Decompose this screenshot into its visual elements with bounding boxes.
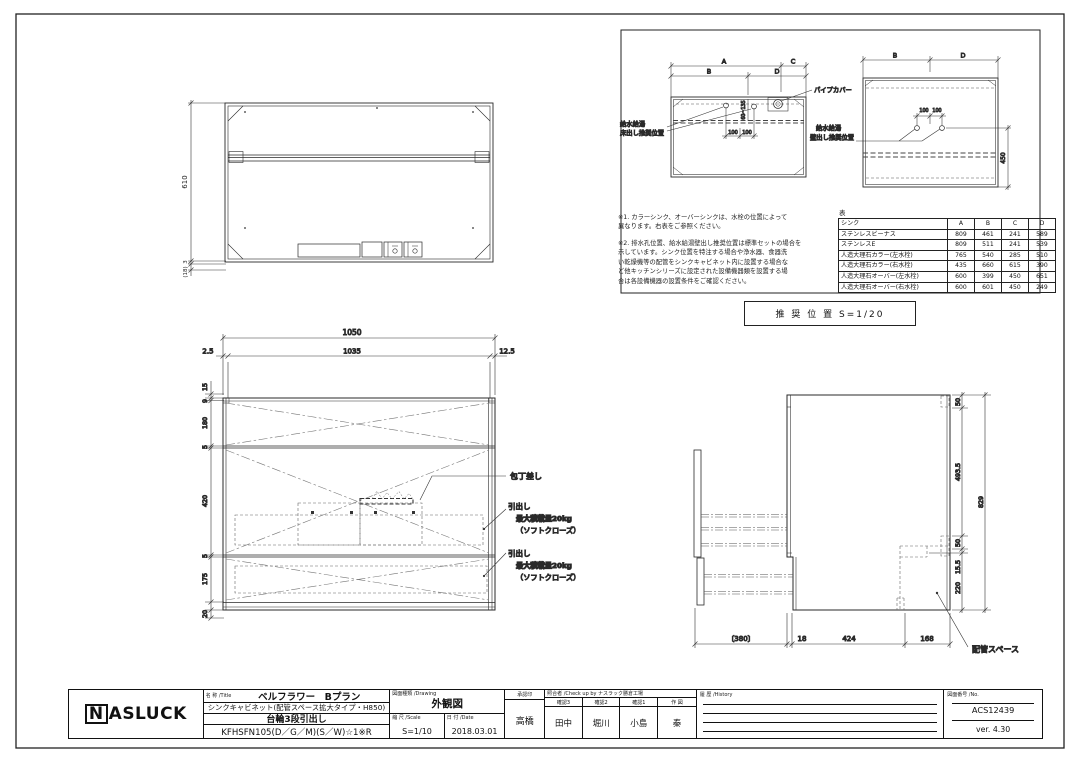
cell: 511 xyxy=(975,240,1002,251)
product-subtitle: シンクキャビネット(配管スペース拡大タイプ・H850) xyxy=(204,703,390,714)
dim-100-floor-a: 100 xyxy=(728,130,738,136)
sink-table: シンク A B C D ステンレスビーナス 809 461 241 589 ステ… xyxy=(838,218,1056,293)
drawing-number-cell: 図面番号 /No. ACS12439 ver. 4.30 xyxy=(944,690,1042,738)
table-row: ステンレスビーナス 809 461 241 589 xyxy=(839,229,1056,240)
sink-table-block: 表 シンク A B C D ステンレスビーナス 809 461 241 589 … xyxy=(838,207,1040,293)
dim-18: (18) xyxy=(183,266,189,277)
cell: 600 xyxy=(948,282,975,293)
cell: 809 xyxy=(948,229,975,240)
dim-5b: 5 xyxy=(202,554,209,558)
cell: 765 xyxy=(948,250,975,261)
layout-plan-floor: 100 100 60~135 A C B D パイプカバー 給水給湯 床出し推奨… xyxy=(620,58,852,178)
dim-50b: 50 xyxy=(955,539,962,547)
dim-15-5: 15.5 xyxy=(955,560,962,574)
front-view: 1050 2.5 1035 12.5 15 9 180 5 420 5 175 … xyxy=(202,328,580,621)
note-1: ※1. カラーシンク、オーバーシンクは、水栓の位置によって 異なります。右表をご… xyxy=(618,213,842,232)
check-col-3-label: 確認3 xyxy=(545,698,583,706)
check-name-2: 堀川 xyxy=(583,707,621,738)
product-title: ベルフラワー Bプラン xyxy=(231,690,387,703)
table-row: 人造大理石オーバー(左水栓) 600 399 450 651 xyxy=(839,271,1056,282)
cell: 589 xyxy=(1029,229,1056,240)
cell: 249 xyxy=(1029,282,1056,293)
dim-220: 220 xyxy=(955,582,962,594)
logo-text: ASLUCK xyxy=(109,704,187,724)
wall-supply-label-1: 給水給湯 xyxy=(816,123,842,132)
check-label: 照合者 /Check up by ナスラック勝倉工場 xyxy=(547,691,643,697)
sink-table-caption: 表 xyxy=(839,207,1040,217)
dim-letter-C: C xyxy=(791,58,796,66)
dim-5a: 5 xyxy=(202,445,209,449)
cell: 461 xyxy=(975,229,1002,240)
dim-829: 829 xyxy=(978,496,985,508)
cell: 435 xyxy=(948,261,975,272)
table-row: 人造大理石カラー(左水栓) 765 540 285 510 xyxy=(839,250,1056,261)
approval-cell: 承認印 高橋 xyxy=(505,690,545,738)
dim-letter-D2: D xyxy=(960,52,965,60)
cell: 285 xyxy=(1002,250,1029,261)
dim-420: 420 xyxy=(202,495,209,507)
wall-supply-label-2: 壁出し推奨位置 xyxy=(810,133,854,142)
cell: 600 xyxy=(948,271,975,282)
cell: 390 xyxy=(1029,261,1056,272)
history-cell: 履 歴 /History xyxy=(697,690,944,738)
notes-block: ※1. カラーシンク、オーバーシンクは、水栓の位置によって 異なります。右表をご… xyxy=(618,213,842,293)
cell: ステンレスビーナス xyxy=(839,229,948,240)
drawer-close-2: （ソフトクローズ） xyxy=(516,573,580,582)
table-row: 人造大理石カラー(右水栓) 435 660 615 390 xyxy=(839,261,1056,272)
note-2: ※2. 排水孔位置、給水給湯壁出し推奨位置は標準セットの場合を 示しています。シ… xyxy=(618,239,842,286)
drawer-load-1: 最大積載量20kg xyxy=(516,514,572,523)
dim-168: 168 xyxy=(920,635,933,643)
dim-380: 〔380〕 xyxy=(727,635,754,643)
cell: 人造大理石オーバー(左水栓) xyxy=(839,271,948,282)
title-block: NASLUCK 名 称 /Title ベルフラワー Bプラン シンクキャビネット… xyxy=(68,689,1043,739)
cell: 399 xyxy=(975,271,1002,282)
check-name-1: 小島 xyxy=(620,707,658,738)
drawing-type-cell: 図面種類 /Drawing 外観図 縮 尺 /Scale S=1/10 日 付 … xyxy=(390,690,505,738)
dim-18b: 18 xyxy=(798,635,807,643)
dim-100-wall-b: 100 xyxy=(932,108,941,114)
product-type: 台輪3段引出し xyxy=(204,714,390,726)
dim-15: 15 xyxy=(202,383,209,391)
col-sink: シンク xyxy=(839,219,948,230)
dim-letter-B: B xyxy=(707,68,711,76)
drawing-sheet: 610 3 (18) xyxy=(0,0,1080,764)
dim-letter-D: D xyxy=(774,68,779,76)
date-label: 日 付 /Date xyxy=(447,715,474,721)
dim-424: 424 xyxy=(842,635,856,643)
cell: 809 xyxy=(948,240,975,251)
knife-holder-label: 包丁差し xyxy=(510,471,542,481)
scale-value: S=1/10 xyxy=(390,727,444,736)
side-view: 〔380〕 18 424 168 50 493.5 50 15.5 220 82… xyxy=(693,392,1020,654)
name-label: 名 称 /Title xyxy=(206,693,232,699)
check-cell: 照合者 /Check up by ナスラック勝倉工場 確認3 確認2 確認1 作… xyxy=(545,690,697,738)
col-a: A xyxy=(948,219,975,230)
layout-plan-wall: 100 100 450 B D 給水給湯 壁出し推奨位置 xyxy=(810,52,1011,191)
logo-cell: NASLUCK xyxy=(69,690,204,738)
drawer-label-2: 引出し xyxy=(508,548,531,558)
dim-1050: 1050 xyxy=(342,328,361,337)
cell: 人造大理石カラー(左水栓) xyxy=(839,250,948,261)
dim-letter-B2: B xyxy=(893,52,897,60)
table-row: ステンレスE 809 511 241 539 xyxy=(839,240,1056,251)
logo-n: N xyxy=(85,704,108,724)
dim-2-5: 2.5 xyxy=(202,348,213,356)
cell: 540 xyxy=(975,250,1002,261)
check-col-1-label: 確認1 xyxy=(620,698,658,706)
sheet-border xyxy=(16,14,1064,748)
drawing-version: ver. 4.30 xyxy=(944,725,1042,734)
dim-12-5: 12.5 xyxy=(499,348,515,356)
pipe-cover-label: パイプカバー xyxy=(814,86,852,94)
dim-60-135: 60~135 xyxy=(741,100,747,119)
dim-1035: 1035 xyxy=(343,348,361,356)
cell: 450 xyxy=(1002,282,1029,293)
history-label: 履 歴 /History xyxy=(700,692,733,698)
cell: 人造大理石カラー(右水栓) xyxy=(839,261,948,272)
dim-180: 180 xyxy=(202,417,209,429)
drawer-close-1: （ソフトクローズ） xyxy=(516,526,580,535)
dim-610: 610 xyxy=(181,175,189,188)
dim-20: 20 xyxy=(202,610,209,618)
date-value: 2018.03.01 xyxy=(445,727,504,736)
pipe-space-label: 配管スペース xyxy=(972,644,1019,654)
dim-50a: 50 xyxy=(955,398,962,406)
col-b: B xyxy=(975,219,1002,230)
dim-letter-A: A xyxy=(722,58,727,66)
sink-table-header-row: シンク A B C D xyxy=(839,219,1056,230)
dim-450: 450 xyxy=(1000,152,1007,164)
dim-100-wall-a: 100 xyxy=(919,108,928,114)
cell: 510 xyxy=(1029,250,1056,261)
drawer-label-1: 引出し xyxy=(508,501,531,511)
cell: 人造大理石オーバー(右水栓) xyxy=(839,282,948,293)
floor-supply-label-2: 床出し推奨位置 xyxy=(620,128,664,137)
scale-label: 縮 尺 /Scale xyxy=(392,715,420,721)
drawer-load-2: 最大積載量20kg xyxy=(516,561,572,570)
cell: 615 xyxy=(1002,261,1029,272)
number-label: 図面番号 /No. xyxy=(947,692,979,698)
col-d: D xyxy=(1029,219,1056,230)
recommended-position-box: 推 奨 位 置 S=1/20 xyxy=(744,301,916,326)
dim-9: 9 xyxy=(202,399,209,403)
table-row: 人造大理石オーバー(右水栓) 600 601 450 249 xyxy=(839,282,1056,293)
cell: 651 xyxy=(1029,271,1056,282)
nasluck-logo: NASLUCK xyxy=(85,704,187,724)
drawing-type: 外観図 xyxy=(390,696,504,711)
approval-label: 承認印 xyxy=(517,692,532,698)
dim-493-5: 493.5 xyxy=(955,463,962,481)
drawing-number: ACS12439 xyxy=(944,705,1042,715)
cell: 539 xyxy=(1029,240,1056,251)
check-name-3: 田中 xyxy=(545,707,583,738)
cell: 601 xyxy=(975,282,1002,293)
check-col-draw-label: 作 図 xyxy=(658,698,696,706)
floor-supply-label-1: 給水給湯 xyxy=(620,119,646,128)
dim-175: 175 xyxy=(202,573,209,585)
cell: 241 xyxy=(1002,240,1029,251)
dim-3: 3 xyxy=(183,260,189,264)
title-cell: 名 称 /Title ベルフラワー Bプラン シンクキャビネット(配管スペース拡… xyxy=(204,690,391,738)
col-c: C xyxy=(1002,219,1029,230)
drawing-canvas: 610 3 (18) xyxy=(0,0,1080,764)
check-col-2-label: 確認2 xyxy=(583,698,621,706)
cell: ステンレスE xyxy=(839,240,948,251)
cell: 660 xyxy=(975,261,1002,272)
product-code: KFHSFN105(D／G／M)(S／W)☆1※R xyxy=(204,725,390,738)
cell: 450 xyxy=(1002,271,1029,282)
dim-100-floor-b: 100 xyxy=(742,130,752,136)
cell: 241 xyxy=(1002,229,1029,240)
plan-view: 610 3 (18) xyxy=(181,100,493,278)
approval-name: 高橋 xyxy=(505,700,544,740)
check-name-draw: 秦 xyxy=(658,707,696,738)
